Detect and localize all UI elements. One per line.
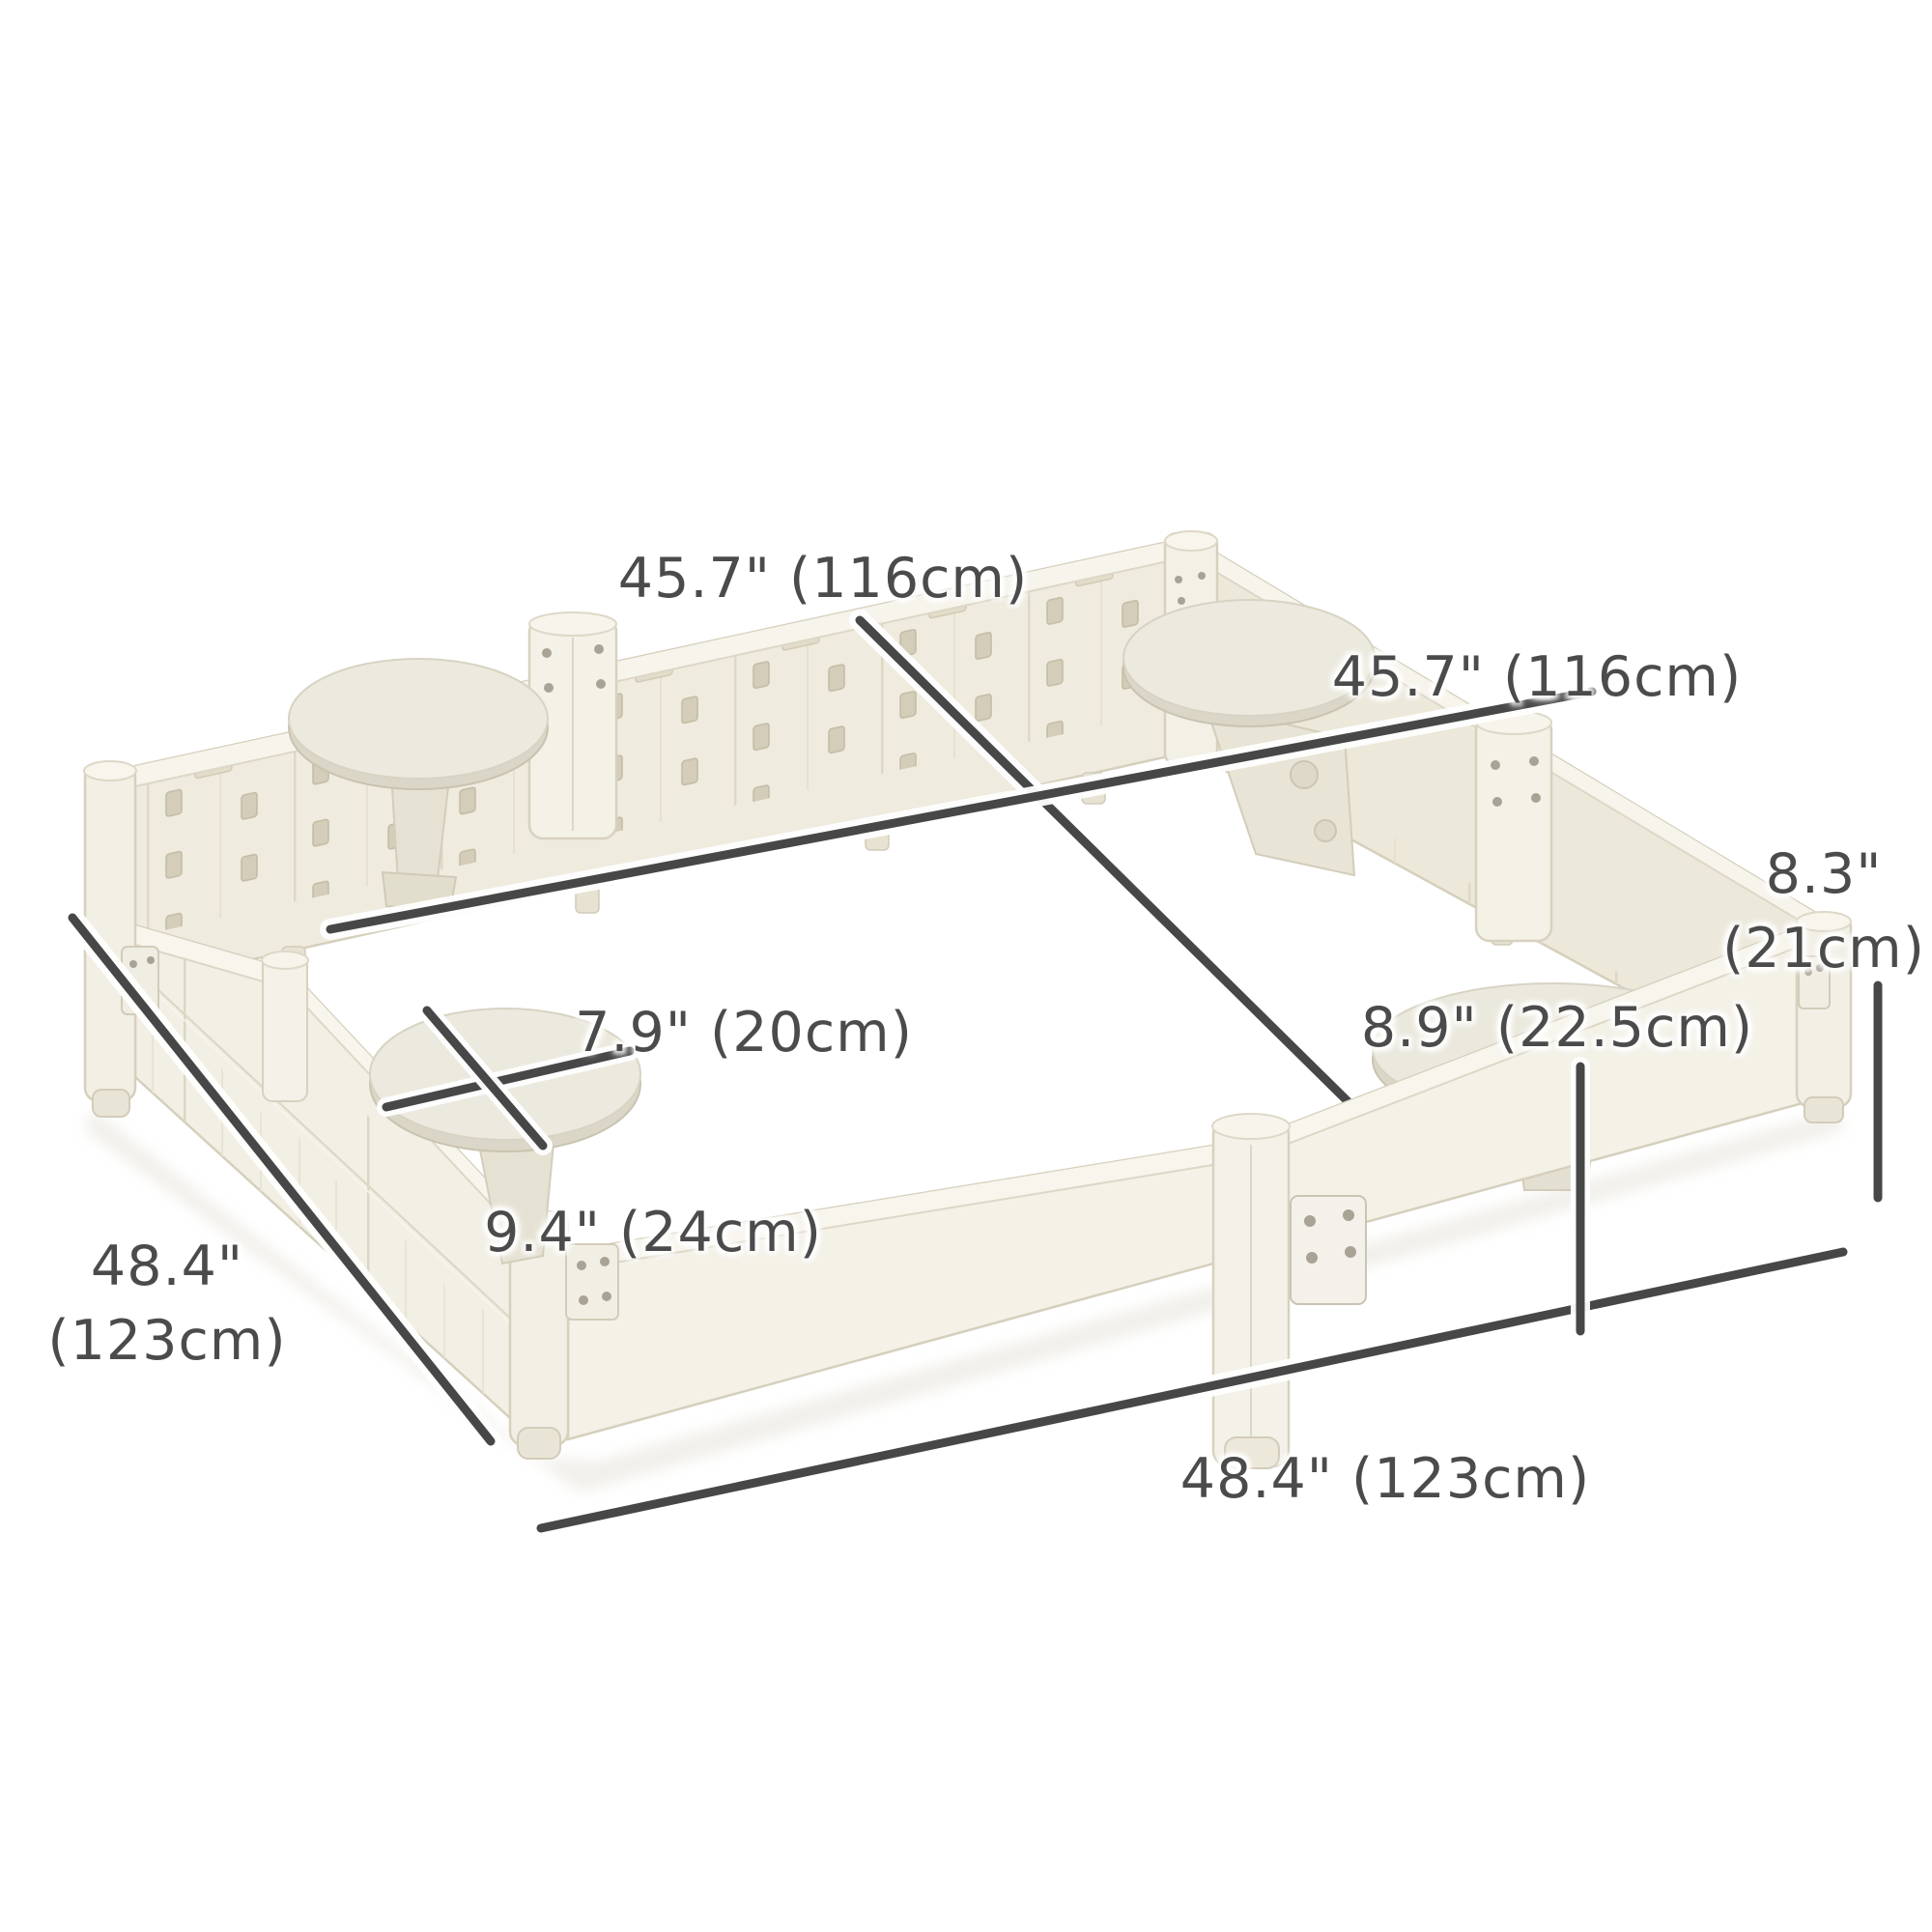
product-dimension-diagram: 45.7" (116cm) 45.7" (116cm) 8.3" (21cm) …	[0, 0, 1932, 1932]
dimension-label-wall-height: 8.3" (21cm)	[1722, 838, 1925, 986]
dimension-label-seat-depth: 9.4" (24cm)	[484, 1201, 822, 1264]
dimension-label-wall-height-cm: (21cm)	[1722, 912, 1925, 986]
wall-hinge	[262, 952, 308, 1101]
dimension-label-outer-left-cm: (123cm)	[47, 1304, 286, 1378]
dimension-label-wall-height-inches: 8.3"	[1722, 838, 1925, 912]
sandbox-illustration	[0, 0, 1932, 1932]
dimension-label-seat-width: 7.9" (20cm)	[575, 1001, 913, 1065]
wall-hinge	[1476, 711, 1551, 941]
dimension-label-outer-left-inches: 48.4"	[47, 1230, 286, 1304]
dimension-label-outer-bottom: 48.4" (123cm)	[1180, 1447, 1590, 1511]
dimension-label-inner-right: 45.7" (116cm)	[1332, 645, 1742, 709]
dimension-label-corner-seat-width: 8.9" (22.5cm)	[1361, 996, 1753, 1060]
dimension-label-inner-top: 45.7" (116cm)	[618, 547, 1028, 611]
dimension-label-outer-left: 48.4" (123cm)	[47, 1230, 286, 1378]
